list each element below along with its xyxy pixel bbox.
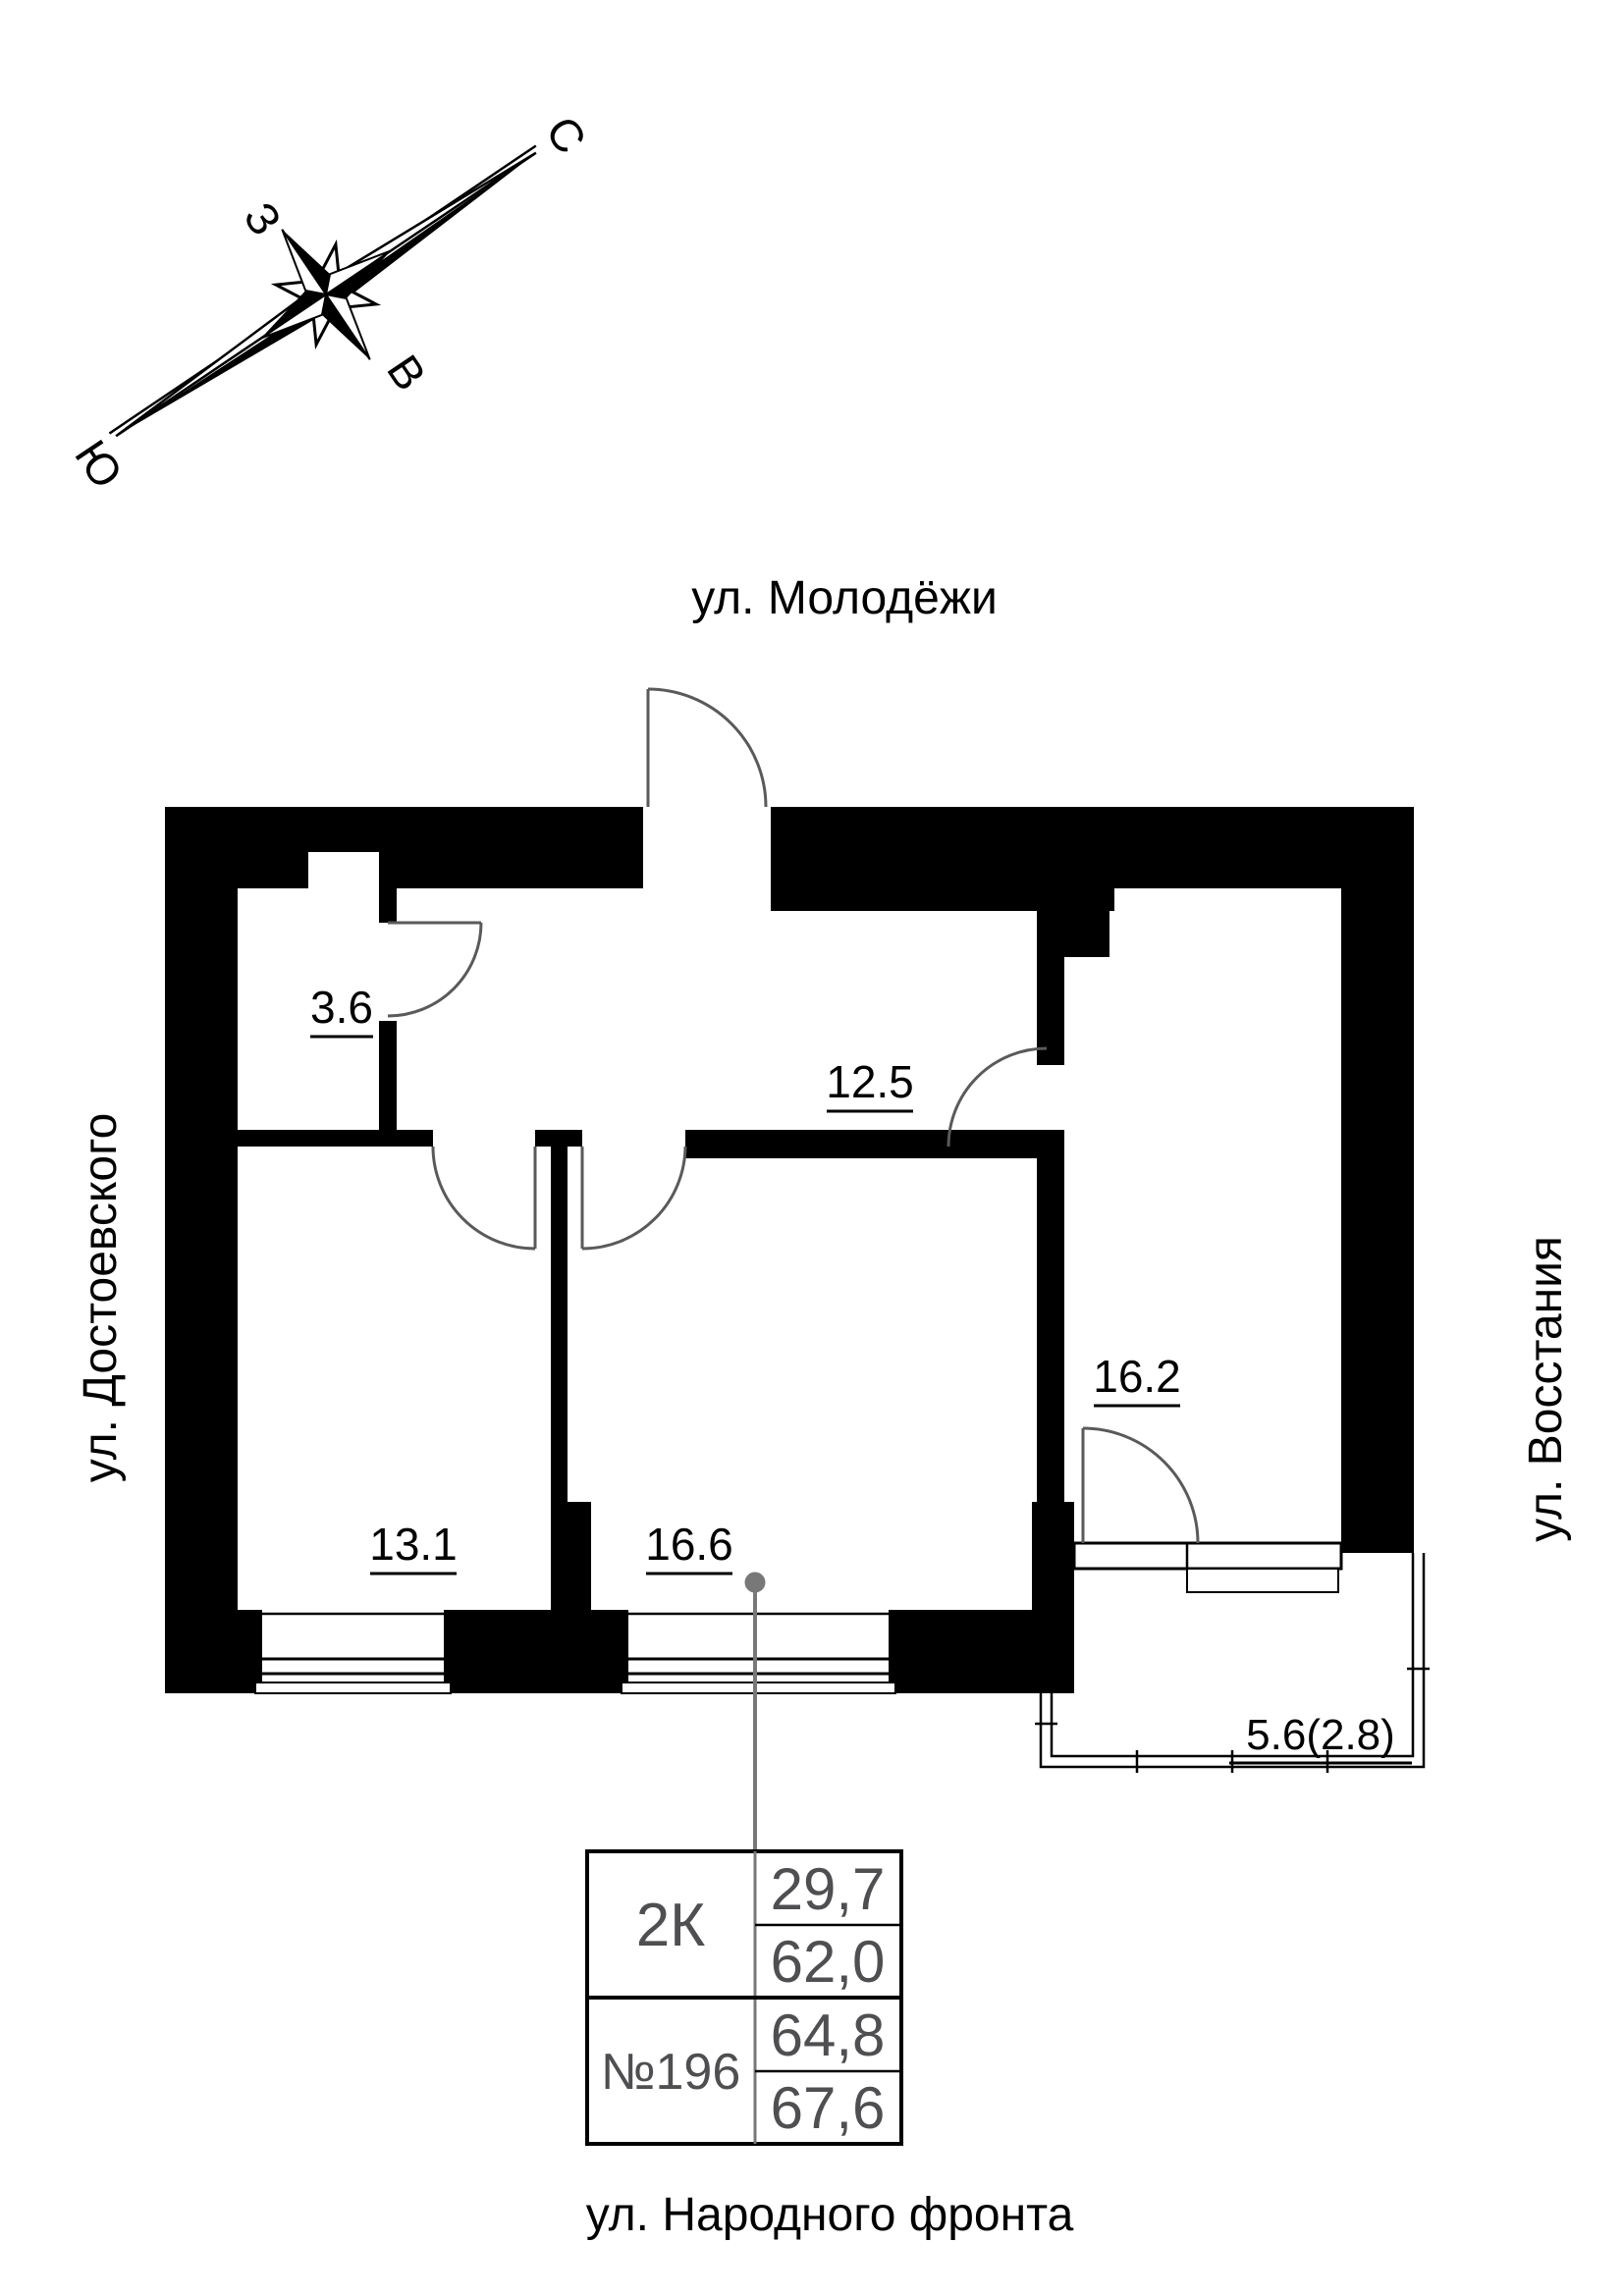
compass-west-label: З — [234, 193, 292, 244]
bedroom-door — [433, 1147, 535, 1249]
area-value-total: 67,6 — [771, 2075, 886, 2141]
area-value-reduced: 64,8 — [771, 2002, 886, 2068]
compass-south-label: Ю — [65, 431, 133, 498]
street-label-bottom: ул. Народного фронта — [586, 2189, 1074, 2241]
apartment-type: 2К — [636, 1892, 706, 1959]
area-label-living-room: 16.6 — [645, 1519, 733, 1570]
street-label-top: ул. Молодёжи — [691, 572, 998, 624]
apartment-number: №196 — [601, 2044, 741, 2101]
window-living-room — [622, 1614, 895, 1693]
compass-east-label: В — [377, 346, 436, 400]
compass-rose: С Ю З В — [8, 27, 657, 571]
area-label-kitchen: 16.2 — [1093, 1351, 1181, 1402]
area-label-hall: 12.5 — [826, 1056, 914, 1107]
apartment-info-table: 2К №196 29,7 62,0 64,8 67,6 — [587, 1851, 901, 2144]
area-label-balcony: 5.6(2.8) — [1246, 1711, 1395, 1759]
floor-plan-page: С Ю З В ул. Молодёжи ул. Достоевского ул… — [0, 0, 1623, 2296]
area-value-main: 62,0 — [771, 1929, 886, 1995]
closet-door — [388, 923, 481, 1016]
street-label-right: ул. Восстания — [1520, 1236, 1572, 1542]
street-label-left: ул. Достоевского — [75, 1113, 127, 1483]
compass-north-label: С — [536, 107, 597, 163]
area-label-closet: 3.6 — [310, 982, 373, 1033]
living-room-door — [582, 1147, 685, 1249]
entrance-door — [648, 689, 766, 807]
area-value-living: 29,7 — [771, 1856, 886, 1922]
area-label-bedroom: 13.1 — [369, 1519, 458, 1570]
floor-plan-drawing: С Ю З В ул. Молодёжи ул. Достоевского ул… — [0, 0, 1623, 2296]
balcony-unit — [1074, 1543, 1341, 1592]
window-bedroom — [255, 1614, 451, 1693]
balcony-door — [1083, 1428, 1198, 1543]
